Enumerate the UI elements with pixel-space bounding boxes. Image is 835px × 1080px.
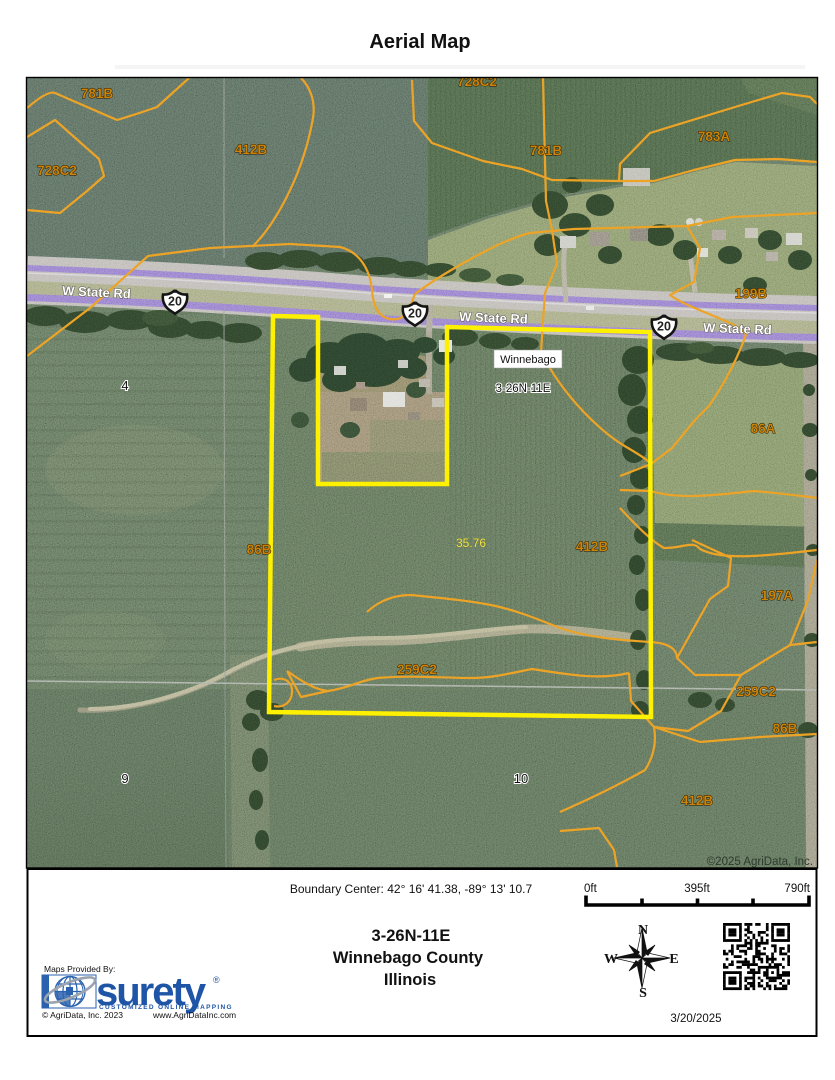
svg-text:197A: 197A <box>761 588 794 603</box>
svg-text:199B: 199B <box>735 286 768 301</box>
svg-text:86B: 86B <box>247 542 272 557</box>
svg-text:10: 10 <box>514 771 528 786</box>
svg-text:86B: 86B <box>773 721 798 736</box>
svg-text:3-26N-11E: 3-26N-11E <box>372 927 451 945</box>
svg-text:259C2: 259C2 <box>397 662 437 677</box>
svg-text:®: ® <box>213 975 220 985</box>
svg-text:20: 20 <box>168 295 182 309</box>
svg-text:395ft: 395ft <box>684 883 710 895</box>
svg-text:0ft: 0ft <box>584 883 598 895</box>
svg-text:412B: 412B <box>681 793 714 808</box>
svg-text:S: S <box>639 986 647 1001</box>
svg-text:781B: 781B <box>81 86 114 101</box>
svg-text:© AgriData, Inc. 2023: © AgriData, Inc. 2023 <box>42 1010 123 1020</box>
svg-text:Aerial Map: Aerial Map <box>369 31 470 53</box>
svg-text:4: 4 <box>121 378 128 393</box>
svg-text:412B: 412B <box>235 142 268 157</box>
svg-text:Winnebago County: Winnebago County <box>333 949 484 967</box>
svg-text:412B: 412B <box>576 539 609 554</box>
svg-text:20: 20 <box>657 320 671 334</box>
svg-text:©2025 AgriData, Inc.: ©2025 AgriData, Inc. <box>707 856 813 868</box>
svg-text:W State Rd: W State Rd <box>459 309 528 327</box>
svg-text:790ft: 790ft <box>784 883 810 895</box>
svg-text:20: 20 <box>408 307 422 321</box>
svg-text:781B: 781B <box>530 143 563 158</box>
svg-text:86A: 86A <box>751 421 776 436</box>
svg-text:728C2: 728C2 <box>37 163 77 178</box>
svg-text:35.76: 35.76 <box>456 536 486 550</box>
svg-text:783A: 783A <box>698 129 731 144</box>
svg-text:9: 9 <box>121 771 128 786</box>
svg-text:Winnebago: Winnebago <box>500 354 556 366</box>
svg-text:W State Rd: W State Rd <box>703 320 772 337</box>
svg-text:259C2: 259C2 <box>736 684 776 699</box>
svg-text:www.AgriDataInc.com: www.AgriDataInc.com <box>152 1010 236 1020</box>
svg-text:Boundary Center: 42° 16' 41.38: Boundary Center: 42° 16' 41.38, -89° 13'… <box>290 882 533 896</box>
svg-text:3/20/2025: 3/20/2025 <box>670 1013 721 1025</box>
svg-text:Illinois: Illinois <box>384 971 436 989</box>
svg-text:E: E <box>669 952 678 967</box>
svg-text:W: W <box>604 952 618 967</box>
svg-text:3-26N-11E: 3-26N-11E <box>496 383 551 395</box>
